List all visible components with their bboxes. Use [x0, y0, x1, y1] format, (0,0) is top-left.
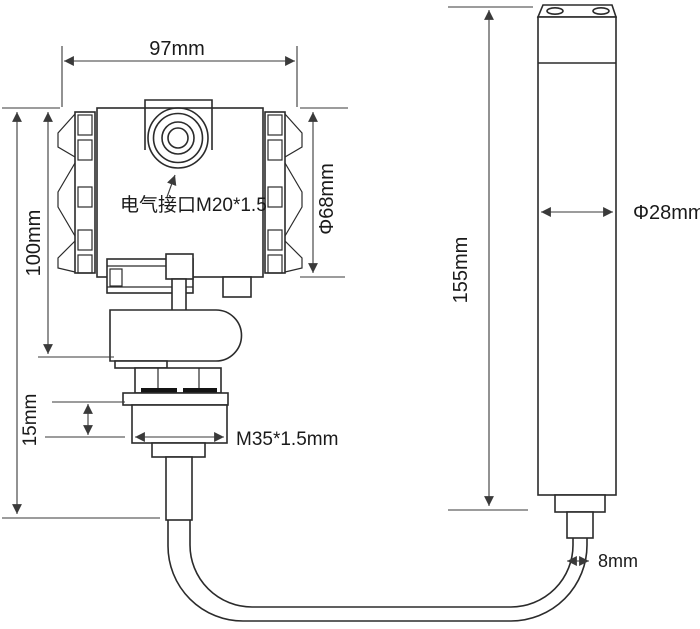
cable-inner-edge	[190, 520, 573, 607]
label-155mm: 155mm	[450, 237, 472, 304]
left-end-cap	[58, 112, 95, 273]
junction-yoke	[110, 310, 242, 361]
packing-nut	[135, 368, 221, 394]
transmitter-head	[58, 100, 302, 520]
probe-top-face	[538, 5, 616, 17]
probe-cylinder	[538, 17, 616, 495]
label-8mm: 8mm	[598, 551, 638, 571]
terminal-stem	[172, 279, 186, 311]
drawing-canvas: 97mm 100mm Φ68mm 电气接口M20*1.5 15mm M35*1.…	[0, 0, 700, 629]
housing-step	[223, 277, 251, 297]
mounting-flange	[123, 393, 228, 405]
housing-body	[97, 108, 263, 277]
label-97mm: 97mm	[149, 38, 205, 60]
probe-body	[538, 5, 616, 538]
dimension-drawing: 97mm 100mm Φ68mm 电气接口M20*1.5 15mm M35*1.…	[0, 0, 700, 629]
dimension-lines	[2, 7, 613, 561]
probe-neck	[567, 512, 593, 538]
yoke-foot	[115, 361, 167, 368]
right-end-cap	[265, 112, 302, 273]
label-15mm: 15mm	[20, 394, 41, 447]
label-m35: M35*1.5mm	[236, 429, 338, 450]
cable-gland-stem	[166, 457, 192, 520]
label-electrical-port: 电气接口M20*1.5	[120, 194, 267, 216]
probe-bottom-step	[555, 495, 605, 512]
collar	[152, 443, 205, 457]
connecting-cable	[168, 520, 587, 621]
label-28mm: Φ28mm	[633, 202, 700, 224]
label-100mm: 100mm	[23, 210, 45, 277]
label-68mm: Φ68mm	[316, 163, 338, 235]
